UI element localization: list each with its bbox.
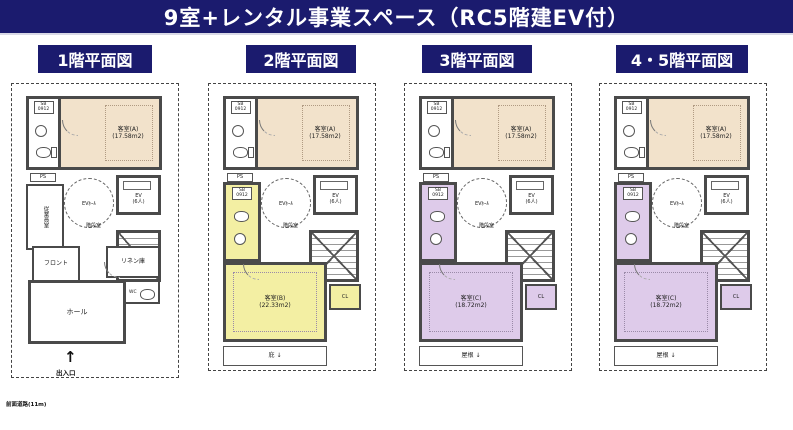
elevator-capacity: (6人) bbox=[329, 199, 341, 205]
bath-unit-room-2: SB 0912 bbox=[223, 182, 261, 262]
elevator-hall-label: EVﾎｰﾙ bbox=[82, 200, 96, 207]
staff-room-label: 従業員室 bbox=[42, 206, 49, 228]
toilet-icon bbox=[625, 211, 640, 222]
hall-room: ホール bbox=[28, 280, 126, 344]
stairwell-label: 階段室 bbox=[86, 222, 101, 229]
bath-unit-room: SB 0912 bbox=[223, 96, 258, 170]
washbasin-icon bbox=[232, 125, 244, 137]
wc-label: WC bbox=[129, 290, 137, 296]
elevator-capacity: (6人) bbox=[720, 199, 732, 205]
bath-unit-room: SB 0912 bbox=[614, 96, 649, 170]
bath-unit-room-2: SB 0912 bbox=[614, 182, 652, 262]
closet: CL bbox=[329, 284, 361, 310]
tatami-outline bbox=[624, 272, 708, 332]
floor-tab-2f: 2階平面図 bbox=[246, 45, 356, 73]
washbasin-icon bbox=[430, 233, 442, 245]
entrance-label: 出入口 bbox=[56, 367, 76, 377]
floor-tab-4-5f: 4・5階平面図 bbox=[616, 45, 748, 73]
canopy-label: 庇 ↓ bbox=[269, 352, 282, 360]
toilet-tank-icon bbox=[444, 147, 450, 158]
unit-bath-label: SB 0912 bbox=[623, 187, 643, 200]
elevator-room: EV (6人) bbox=[704, 175, 749, 215]
elevator-hall: EVﾎｰﾙ bbox=[64, 178, 114, 228]
ps-label: PS bbox=[237, 174, 243, 180]
tatami-outline bbox=[233, 272, 317, 332]
canopy-area: 庇 ↓ bbox=[223, 346, 327, 366]
toilet-tank-icon bbox=[248, 147, 254, 158]
elevator-capacity: (6人) bbox=[525, 199, 537, 205]
guest-room-a-area: (17.58m2) bbox=[309, 133, 341, 141]
staff-room: 従業員室 bbox=[26, 184, 64, 250]
floor-plan-2f: SB 0912 客室(A) (17.58m2) PS SB 0912 EVﾎｰﾙ… bbox=[203, 80, 399, 428]
toilet-icon bbox=[140, 289, 155, 300]
pipe-space: PS bbox=[423, 173, 449, 182]
toilet-icon bbox=[234, 211, 249, 222]
floor-plan-1f: SB 0912 客室(A) (17.58m2) PS 従業員室 EVﾎｰﾙ EV… bbox=[6, 80, 202, 428]
floor-plan-4-5f: SB 0912 客室(A) (17.58m2) PS SB 0912 EVﾎｰﾙ… bbox=[594, 80, 790, 428]
guest-room-a-label: 客室(A) bbox=[309, 126, 341, 134]
hall-label: ホール bbox=[67, 308, 88, 317]
toilet-icon bbox=[430, 211, 445, 222]
pipe-space: PS bbox=[227, 173, 253, 182]
elevator-hall-label: EVﾎｰﾙ bbox=[670, 200, 684, 207]
roof-label: 屋根 ↓ bbox=[462, 352, 481, 360]
unit-bath-label: SB 0912 bbox=[427, 101, 447, 114]
elevator-car bbox=[320, 181, 348, 190]
ps-label: PS bbox=[628, 174, 634, 180]
bath-unit-room: SB 0912 bbox=[26, 96, 61, 170]
front-desk: フロント bbox=[32, 246, 80, 282]
elevator-hall: EVﾎｰﾙ bbox=[652, 178, 702, 228]
washbasin-icon bbox=[234, 233, 246, 245]
tatami-outline bbox=[429, 272, 513, 332]
roof-area: 屋根 ↓ bbox=[419, 346, 523, 366]
pipe-space: PS bbox=[618, 173, 644, 182]
elevator-car bbox=[711, 181, 739, 190]
unit-bath-label: SB 0912 bbox=[231, 101, 251, 114]
guest-room-c: 客室(C) (18.72m2) bbox=[419, 262, 523, 342]
floor-tab-3f: 3階平面図 bbox=[422, 45, 532, 73]
elevator-hall-label: EVﾎｰﾙ bbox=[279, 200, 293, 207]
washbasin-icon bbox=[625, 233, 637, 245]
toilet-tank-icon bbox=[51, 147, 57, 158]
closet: CL bbox=[720, 284, 752, 310]
elevator-room: EV (6人) bbox=[313, 175, 358, 215]
elevator-room: EV (6人) bbox=[116, 175, 161, 215]
ps-label: PS bbox=[433, 174, 439, 180]
elevator-hall: EVﾎｰﾙ bbox=[457, 178, 507, 228]
road-label: 前面道路(11m) bbox=[6, 400, 46, 408]
guest-room-a-area: (17.58m2) bbox=[112, 133, 144, 141]
guest-room-a-area: (17.58m2) bbox=[700, 133, 732, 141]
bath-unit-room: SB 0912 bbox=[419, 96, 454, 170]
unit-bath-label: SB 0912 bbox=[622, 101, 642, 114]
elevator-capacity: (6人) bbox=[132, 199, 144, 205]
unit-bath-label: SB 0912 bbox=[428, 187, 448, 200]
unit-bath-label: SB 0912 bbox=[34, 101, 54, 114]
toilet-icon bbox=[624, 147, 639, 158]
elevator-car bbox=[123, 181, 151, 190]
stairwell-label: 階段室 bbox=[674, 222, 689, 229]
pipe-space: PS bbox=[30, 173, 56, 182]
floor-tab-1f: 1階平面図 bbox=[38, 45, 152, 73]
guest-room-a-label: 客室(A) bbox=[505, 126, 537, 134]
floor-plan-3f: SB 0912 客室(A) (17.58m2) PS SB 0912 EVﾎｰﾙ… bbox=[399, 80, 595, 428]
unit-bath-label: SB 0912 bbox=[232, 187, 252, 200]
closet-label: CL bbox=[733, 294, 739, 300]
stairwell-label: 階段室 bbox=[479, 222, 494, 229]
bath-unit-room-2: SB 0912 bbox=[419, 182, 457, 262]
guest-room-a-area: (17.58m2) bbox=[505, 133, 537, 141]
closet-label: CL bbox=[538, 294, 544, 300]
toilet-tank-icon bbox=[639, 147, 645, 158]
roof-area: 屋根 ↓ bbox=[614, 346, 718, 366]
washbasin-icon bbox=[35, 125, 47, 137]
guest-room-c: 客室(C) (18.72m2) bbox=[614, 262, 718, 342]
stairwell-label: 階段室 bbox=[283, 222, 298, 229]
toilet-icon bbox=[36, 147, 51, 158]
page-title: 9室+レンタル事業スペース（RC5階建EV付） bbox=[0, 0, 793, 35]
guest-room-a-label: 客室(A) bbox=[700, 126, 732, 134]
toilet-icon bbox=[429, 147, 444, 158]
wc-room: WC bbox=[124, 280, 160, 304]
elevator-room: EV (6人) bbox=[509, 175, 554, 215]
washbasin-icon bbox=[428, 125, 440, 137]
entrance-arrow: ↑ bbox=[64, 348, 77, 366]
guest-room-b: 客室(B) (22.33m2) bbox=[223, 262, 327, 342]
elevator-hall: EVﾎｰﾙ bbox=[261, 178, 311, 228]
linen-room-label: リネン庫 bbox=[121, 258, 145, 266]
elevator-car bbox=[516, 181, 544, 190]
elevator-hall-label: EVﾎｰﾙ bbox=[475, 200, 489, 207]
roof-label: 屋根 ↓ bbox=[657, 352, 676, 360]
washbasin-icon bbox=[623, 125, 635, 137]
ps-label: PS bbox=[40, 174, 46, 180]
guest-room-a-label: 客室(A) bbox=[112, 126, 144, 134]
toilet-icon bbox=[233, 147, 248, 158]
closet-label: CL bbox=[342, 294, 348, 300]
front-desk-label: フロント bbox=[44, 260, 68, 268]
closet: CL bbox=[525, 284, 557, 310]
